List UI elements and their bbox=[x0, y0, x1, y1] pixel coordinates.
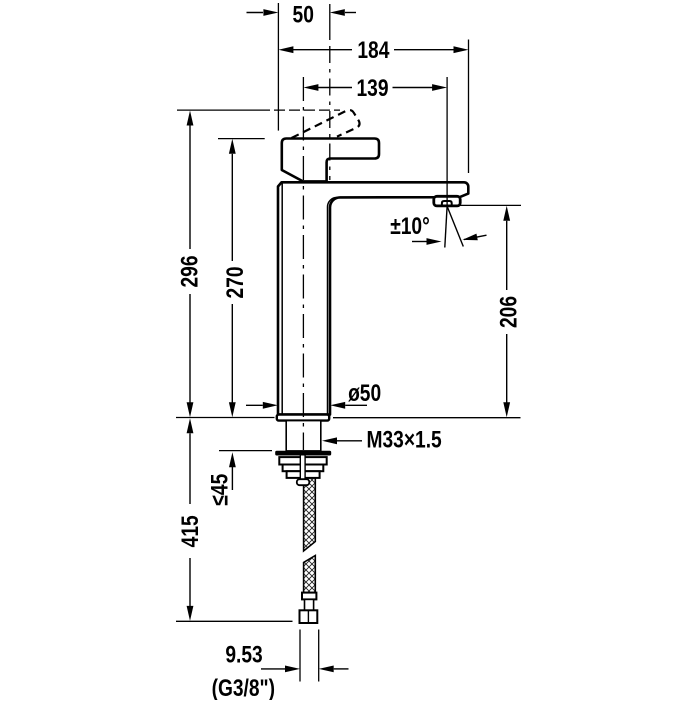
svg-text:(G3/8"): (G3/8") bbox=[212, 674, 275, 700]
svg-text:139: 139 bbox=[356, 74, 388, 102]
svg-text:270: 270 bbox=[221, 266, 249, 298]
svg-text:184: 184 bbox=[357, 36, 389, 64]
svg-text:50: 50 bbox=[293, 0, 314, 28]
svg-text:≤45: ≤45 bbox=[205, 474, 233, 506]
svg-text:ø50: ø50 bbox=[348, 379, 381, 407]
svg-text:9.53: 9.53 bbox=[225, 641, 262, 669]
svg-text:206: 206 bbox=[494, 296, 522, 328]
svg-text:415: 415 bbox=[176, 515, 204, 547]
svg-text:296: 296 bbox=[176, 255, 204, 287]
svg-text:±10°: ±10° bbox=[390, 212, 430, 240]
svg-text:M33×1.5: M33×1.5 bbox=[367, 426, 442, 454]
